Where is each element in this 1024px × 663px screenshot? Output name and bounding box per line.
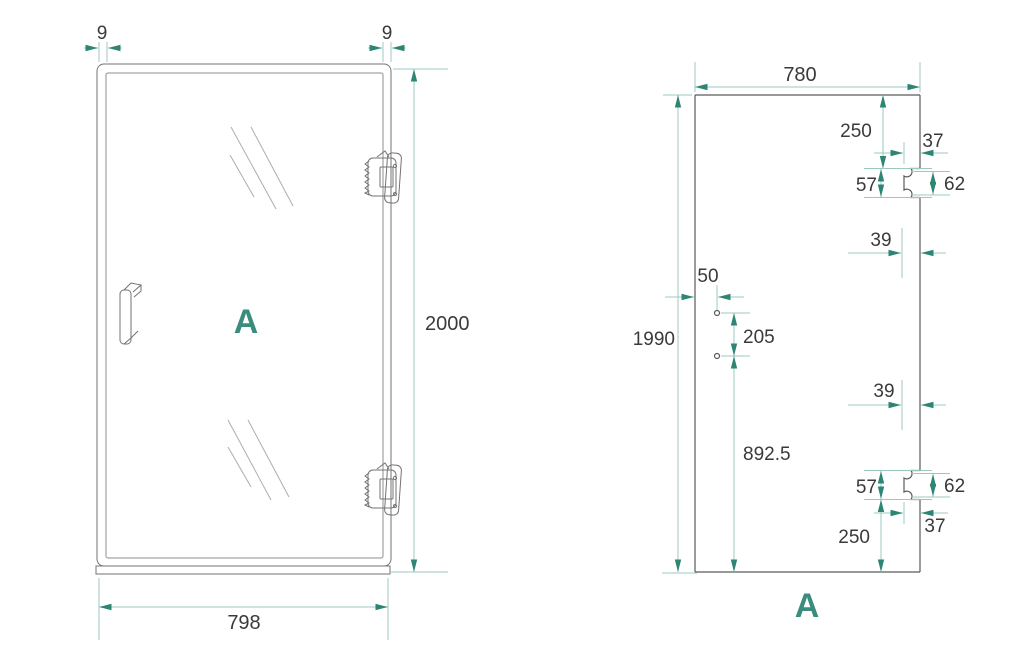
dim-frame-offset-left: 9 xyxy=(84,23,122,62)
dim-top-hinge-from-top: 250 xyxy=(840,95,883,169)
dim-handle-from-edge: 50 xyxy=(665,266,744,310)
hinge-notch-top xyxy=(904,169,920,198)
dim-bottom-hinge-from-bottom: 250 xyxy=(838,500,881,573)
dim-text: 780 xyxy=(783,64,816,86)
handle-hole-bottom xyxy=(715,354,720,359)
dim-text: 798 xyxy=(227,612,260,634)
dim-bottom-hinge-inset: 37 xyxy=(874,502,948,537)
door-handle xyxy=(120,283,141,344)
view-label-left: A xyxy=(234,303,259,341)
dim-text: 57 xyxy=(856,477,877,498)
dim-text: 62 xyxy=(944,174,965,195)
technical-drawing-canvas: A 9 9 2000 798 xyxy=(0,0,1024,663)
dim-door-height: 2000 xyxy=(391,69,470,572)
dim-text: 9 xyxy=(97,23,108,44)
glass-panel-outline xyxy=(695,95,920,572)
dim-frame-offset-right: 9 xyxy=(368,23,406,62)
door-elevation-view: A 9 9 2000 798 xyxy=(84,23,470,640)
dim-text: 892.5 xyxy=(743,444,791,465)
glass-panel-view: 780 1990 250 37 57 xyxy=(633,62,965,625)
door-bottom-seal xyxy=(96,566,390,574)
dim-door-width: 798 xyxy=(99,578,388,640)
dim-text: 39 xyxy=(873,381,894,402)
dim-text: 2000 xyxy=(425,313,470,335)
dim-text: 1990 xyxy=(633,329,675,350)
dim-handle-from-bottom: 892.5 xyxy=(734,356,791,572)
hinge-notch-bottom xyxy=(904,471,920,500)
dim-text: 62 xyxy=(944,476,965,497)
handle-hole-top xyxy=(715,311,720,316)
dim-text: 57 xyxy=(856,175,877,196)
dim-glass-height: 1990 xyxy=(633,95,697,573)
dim-text: 250 xyxy=(840,121,872,142)
dim-bottom-hinge-plate-height: 62 xyxy=(912,474,965,498)
view-label-right: A xyxy=(795,587,820,625)
dim-text: 39 xyxy=(870,230,891,251)
dim-bottom-hinge-hole-offset: 39 xyxy=(848,380,946,430)
dim-top-hinge-cut-height: 57 xyxy=(856,169,932,198)
dim-text: 37 xyxy=(922,131,943,152)
dim-glass-width: 780 xyxy=(695,62,920,92)
dim-handle-hole-spacing: 205 xyxy=(721,313,775,356)
dim-top-hinge-inset: 37 xyxy=(874,131,948,164)
dim-text: 37 xyxy=(924,516,945,537)
dim-top-hinge-hole-offset: 39 xyxy=(848,228,946,278)
dim-text: 250 xyxy=(838,527,870,548)
dim-text: 205 xyxy=(743,327,775,348)
dim-text: 50 xyxy=(697,266,718,287)
dim-bottom-hinge-cut-height: 57 xyxy=(856,471,932,500)
dim-text: 9 xyxy=(382,23,393,44)
dim-top-hinge-plate-height: 62 xyxy=(912,172,965,196)
